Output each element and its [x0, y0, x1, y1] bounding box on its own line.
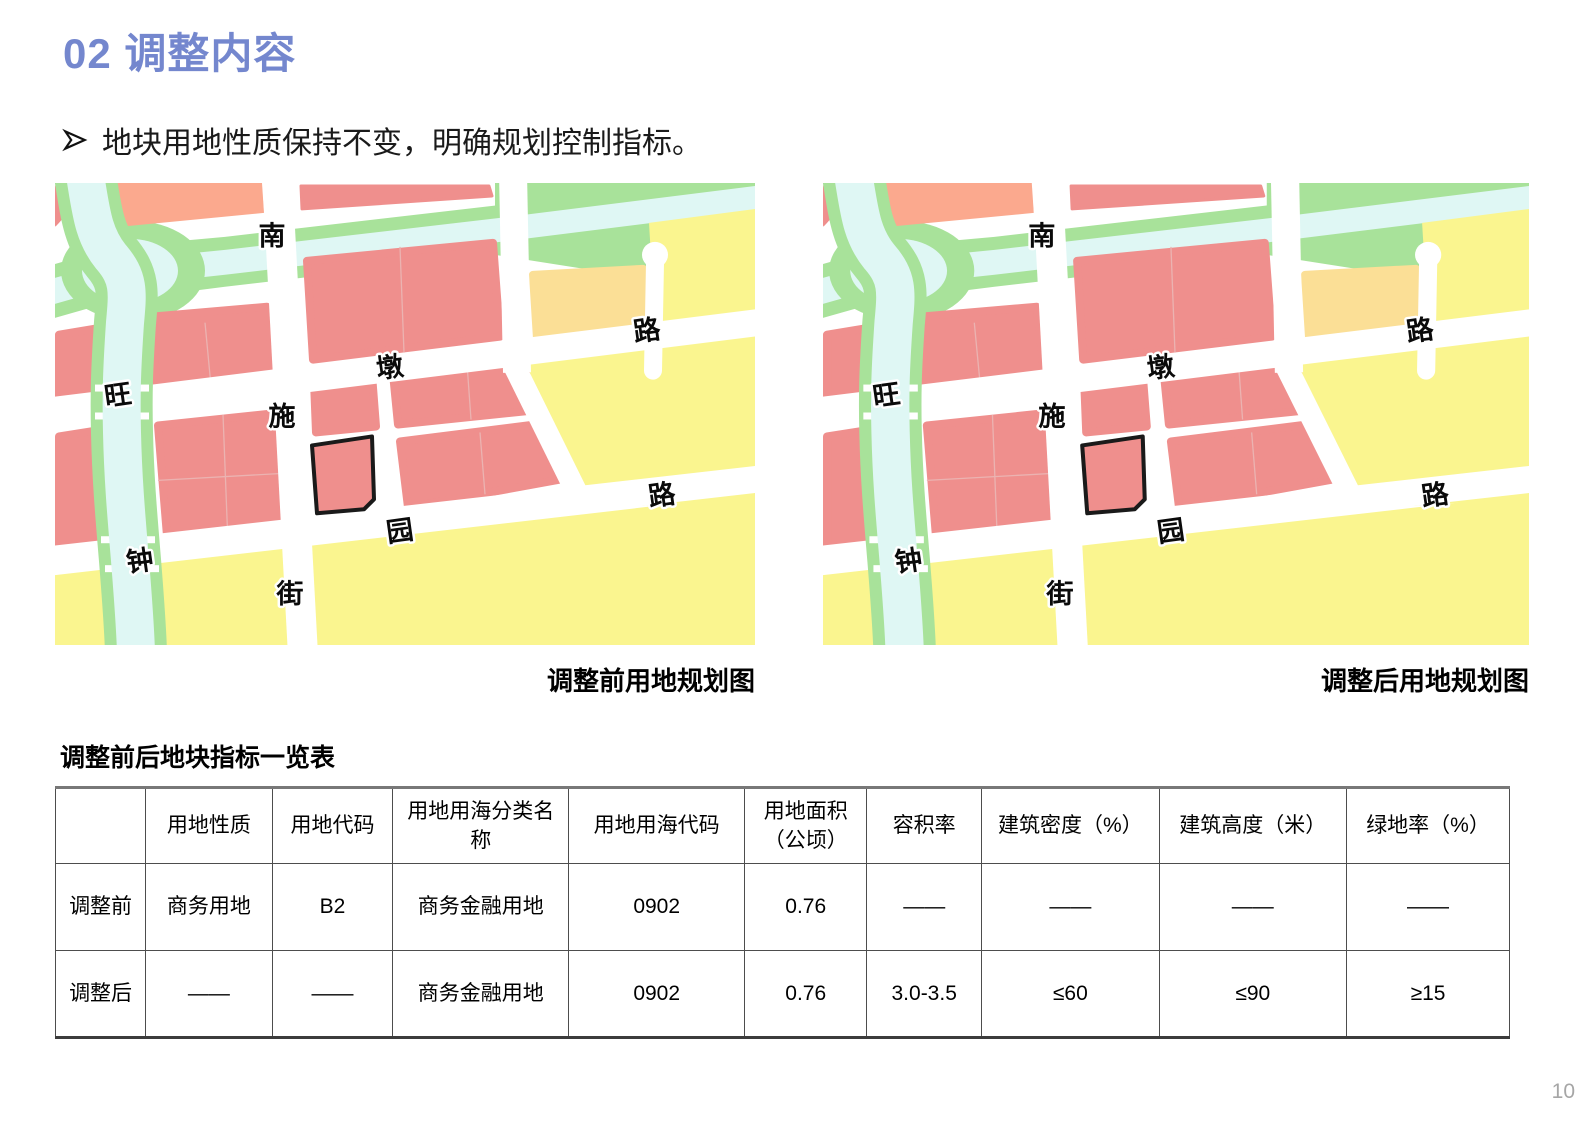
- table-cell: 商务金融用地: [393, 864, 569, 951]
- table-cell: ——: [1347, 864, 1510, 951]
- row-label: 调整前: [56, 864, 146, 951]
- table-cell: ≤90: [1159, 951, 1347, 1038]
- table-cell: ——: [867, 864, 982, 951]
- column-header-blank: [56, 788, 146, 864]
- column-header: 建筑密度（%）: [982, 788, 1159, 864]
- column-header: 绿地率（%）: [1347, 788, 1510, 864]
- table-cell: ——: [272, 951, 393, 1038]
- indicator-table: 用地性质 用地代码 用地用海分类名称 用地用海代码 用地面积（公顷） 容积率 建…: [55, 786, 1510, 1039]
- table-row-after: 调整后 —— —— 商务金融用地 0902 0.76 3.0-3.5 ≤60 ≤…: [56, 951, 1510, 1038]
- table-cell: 0.76: [745, 951, 867, 1038]
- table-cell: ——: [146, 951, 272, 1038]
- table-title: 调整前后地块指标一览表: [60, 738, 335, 774]
- row-label: 调整后: [56, 951, 146, 1038]
- before-map-image: [55, 183, 755, 645]
- table-header-row: 用地性质 用地代码 用地用海分类名称 用地用海代码 用地面积（公顷） 容积率 建…: [56, 788, 1510, 864]
- table-cell: ——: [1159, 864, 1347, 951]
- table-cell: ≤60: [982, 951, 1159, 1038]
- page-number: 10: [1552, 1080, 1575, 1104]
- arrow-bullet-icon: [62, 127, 88, 153]
- column-header: 建筑高度（米）: [1159, 788, 1347, 864]
- table-cell: 0902: [569, 864, 745, 951]
- bullet-text: 地块用地性质保持不变，明确规划控制指标。: [102, 118, 702, 162]
- table-cell: ≥15: [1347, 951, 1510, 1038]
- column-header: 用地代码: [272, 788, 393, 864]
- column-header: 用地面积（公顷）: [745, 788, 867, 864]
- column-header: 用地性质: [146, 788, 272, 864]
- column-header: 容积率: [867, 788, 982, 864]
- table-cell: B2: [272, 864, 393, 951]
- table-cell: ——: [982, 864, 1159, 951]
- column-header: 用地用海分类名称: [393, 788, 569, 864]
- page-title: 02 调整内容: [63, 20, 296, 81]
- table-cell: 0902: [569, 951, 745, 1038]
- table-cell: 商务用地: [146, 864, 272, 951]
- before-map-caption: 调整前用地规划图: [55, 661, 755, 698]
- after-map-caption: 调整后用地规划图: [823, 661, 1529, 698]
- bullet-line: 地块用地性质保持不变，明确规划控制指标。: [62, 118, 702, 162]
- after-map-image: [823, 183, 1529, 645]
- column-header: 用地用海代码: [569, 788, 745, 864]
- after-map-figure: 调整后用地规划图: [823, 183, 1529, 698]
- table-cell: 0.76: [745, 864, 867, 951]
- before-map-figure: 调整前用地规划图: [55, 183, 755, 698]
- table-cell: 商务金融用地: [393, 951, 569, 1038]
- table-row-before: 调整前 商务用地 B2 商务金融用地 0902 0.76 —— —— —— ——: [56, 864, 1510, 951]
- table-cell: 3.0-3.5: [867, 951, 982, 1038]
